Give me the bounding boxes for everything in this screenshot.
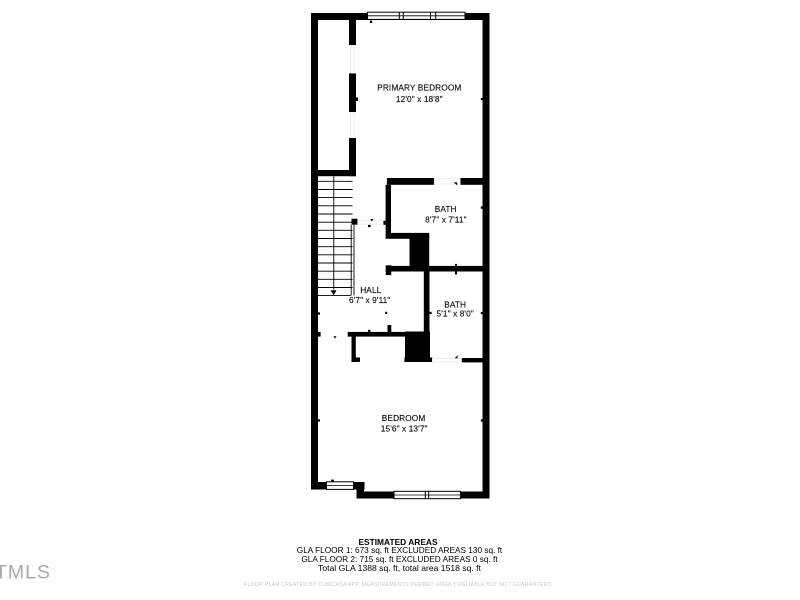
svg-text:Total GLA 1388 sq. ft, total a: Total GLA 1388 sq. ft, total area 1518 s…: [318, 563, 482, 573]
svg-text:HALL: HALL: [360, 285, 381, 295]
svg-text:PRIMARY BEDROOM: PRIMARY BEDROOM: [377, 83, 461, 93]
svg-text:5'1" x 8'0": 5'1" x 8'0": [437, 309, 474, 319]
svg-text:6'7" x 9'11": 6'7" x 9'11": [349, 295, 390, 305]
svg-text:BEDROOM: BEDROOM: [382, 413, 426, 423]
svg-text:GLA FLOOR 1: 673 sq. ft EXCLUD: GLA FLOOR 1: 673 sq. ft EXCLUDED AREAS 1…: [297, 546, 503, 555]
svg-text:TMLS: TMLS: [0, 562, 51, 584]
svg-text:FLOOR PLAN CREATED BY CUBICASA: FLOOR PLAN CREATED BY CUBICASA APP. MEAS…: [244, 582, 553, 588]
svg-text:12'0" x 18'8": 12'0" x 18'8": [396, 94, 443, 104]
svg-text:15'6" x 13'7": 15'6" x 13'7": [381, 424, 428, 434]
svg-text:BATH: BATH: [435, 204, 457, 214]
svg-text:8'7" x 7'11": 8'7" x 7'11": [425, 215, 466, 225]
